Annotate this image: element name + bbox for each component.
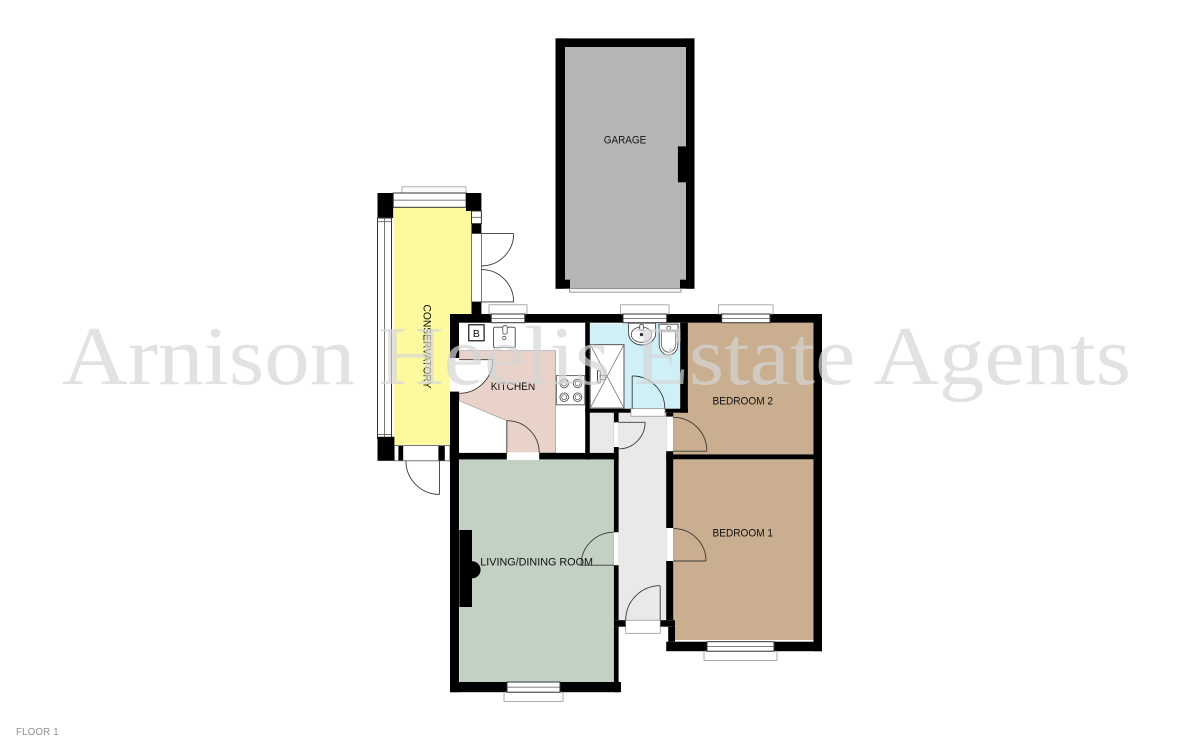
svg-text:Arnison Heelis Estate Agents: Arnison Heelis Estate Agents bbox=[62, 310, 1131, 403]
svg-text:FLOOR 1: FLOOR 1 bbox=[16, 727, 59, 738]
svg-text:BEDROOM 1: BEDROOM 1 bbox=[713, 528, 774, 540]
svg-text:GARAGE: GARAGE bbox=[604, 135, 647, 147]
svg-text:LIVING/DINING ROOM: LIVING/DINING ROOM bbox=[480, 556, 593, 568]
